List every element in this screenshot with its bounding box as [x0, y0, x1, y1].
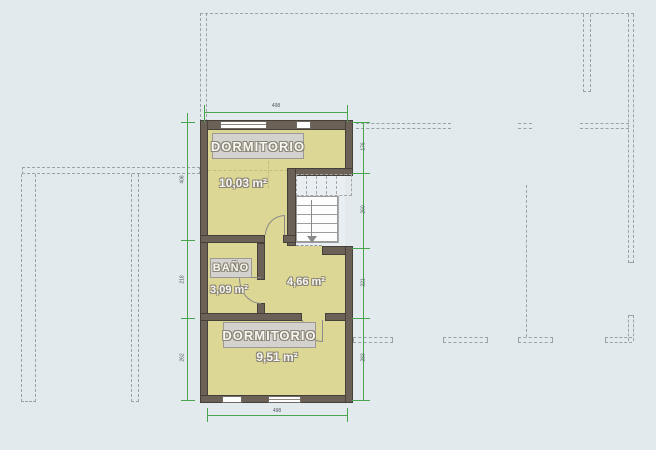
dim-right-tick-3 — [352, 248, 370, 249]
wall-left — [200, 120, 208, 403]
area-dormitorio-bottom: 9,51 m² — [250, 350, 304, 364]
stair-dash-1 — [306, 176, 307, 194]
window-top-main-line — [221, 124, 266, 125]
dim-left-line — [187, 113, 188, 400]
dashed-wall-left-vertical-outer — [21, 174, 36, 402]
dashed-interior-wall-a — [356, 123, 451, 129]
label-dormitorio-top: DORMITORIO — [211, 139, 305, 154]
dim-left-label-2: 218 — [181, 272, 186, 288]
dashed-wall-left-vertical-inner — [131, 174, 139, 402]
wall-mid2-left — [200, 313, 302, 321]
dim-top-label: 498 — [262, 104, 290, 109]
door-leaf-dormitorio-bottom — [322, 320, 323, 342]
label-dormitorio-bottom: DORMITORIO — [222, 328, 316, 343]
label-box-bano: BAÑO — [210, 258, 252, 278]
dashed-lower-wall-b — [443, 337, 488, 343]
window-bottom-small — [222, 396, 242, 403]
dim-bottom-tick-left — [207, 408, 208, 422]
dim-left-tick-4 — [181, 400, 195, 401]
dim-left-tick-1 — [181, 122, 195, 123]
area-bano: 3,09 m² — [205, 284, 253, 296]
door-gap-dormitorio-top — [265, 235, 283, 243]
door-gap-dormitorio-bottom — [302, 313, 325, 320]
dim-left-tick-2 — [181, 240, 195, 241]
dashed-lower-wall-d — [605, 337, 632, 343]
dim-top-tick-right — [347, 105, 348, 122]
stair-dash-3 — [326, 176, 327, 194]
dim-right-tick-4 — [352, 318, 370, 319]
dim-right-tick-1 — [352, 122, 370, 123]
stair-treads — [296, 196, 338, 243]
dim-right-label-2: 260 — [362, 202, 367, 218]
window-top-small — [296, 121, 311, 129]
dim-left-tick-3 — [181, 318, 195, 319]
floor-plan-canvas: 498 498 408 218 262 176 260 221 283 DORM… — [0, 0, 656, 450]
area-hall: 4,66 m² — [281, 276, 331, 288]
dim-bottom-tick-right — [347, 408, 348, 422]
stair-arrow-head-icon — [307, 236, 317, 243]
dashed-interior-pier — [583, 14, 591, 92]
label-box-dormitorio-top: DORMITORIO — [212, 133, 304, 159]
dim-top-tick-left — [204, 105, 205, 122]
dim-top-line — [204, 112, 348, 113]
stair-dash-2 — [316, 176, 317, 194]
dim-right-label-1: 176 — [362, 139, 367, 155]
dim-left-label-3: 262 — [181, 350, 186, 366]
dim-right-tick-2 — [352, 173, 370, 174]
label-box-dormitorio-bottom: DORMITORIO — [223, 322, 316, 348]
dashed-boundary-right-edge — [628, 14, 634, 263]
dim-right-tick-5 — [352, 400, 370, 401]
stair-opening-dashed — [296, 245, 322, 246]
dashed-interior-wall-c — [580, 123, 629, 129]
window-bottom-main-line — [269, 399, 300, 400]
wall-mid1-right — [283, 235, 296, 243]
label-bano: BAÑO — [213, 262, 249, 274]
dim-left-label-1: 408 — [181, 172, 186, 188]
stair-arrow-line — [311, 200, 312, 236]
stair-divider — [338, 196, 339, 243]
projection-line-horizontal — [208, 170, 288, 171]
dim-right-label-3: 221 — [362, 275, 367, 291]
wall-right-lower — [345, 246, 353, 403]
wall-bano-right-a — [257, 243, 265, 280]
dashed-interior-wall-vertical — [526, 185, 527, 337]
stair-dash-4 — [336, 176, 337, 194]
dim-bottom-line — [207, 415, 348, 416]
door-leaf-dormitorio-top — [284, 215, 285, 235]
window-top-main — [220, 121, 267, 129]
dashed-interior-wall-b — [518, 123, 532, 129]
dashed-wall-left-horizontal — [22, 167, 200, 174]
stair-upper-flight-dashed — [296, 174, 352, 196]
dashed-boundary-top — [200, 13, 634, 14]
wall-mid1-left — [200, 235, 265, 243]
dim-bottom-label: 498 — [263, 409, 291, 414]
area-dormitorio-top: 10,03 m² — [212, 176, 274, 190]
dashed-lower-wall-c — [518, 337, 553, 343]
dashed-lower-wall-a — [353, 337, 393, 343]
dim-right-label-4: 283 — [362, 350, 367, 366]
